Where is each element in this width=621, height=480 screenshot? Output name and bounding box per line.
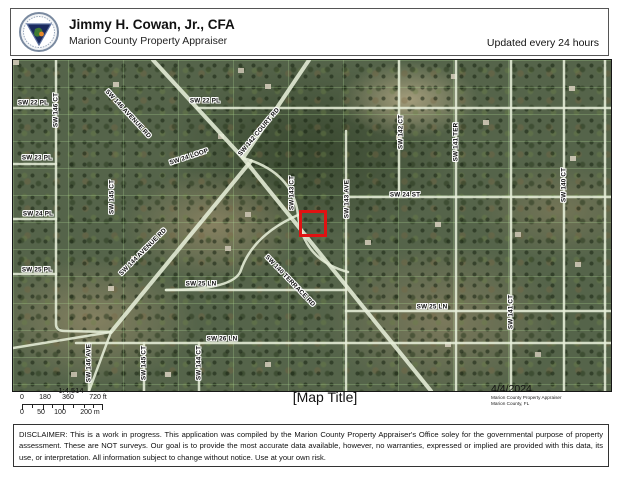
scale-bar (22, 404, 103, 405)
scale-ft-360: 360 (62, 394, 74, 401)
header: Jimmy H. Cowan, Jr., CFA Marion County P… (10, 8, 609, 56)
parcel-highlight[interactable] (299, 210, 327, 237)
scale-ft-180: 180 (39, 394, 51, 401)
street-label: SW 145 CT (141, 346, 148, 380)
street-label: SW 141 TER (453, 123, 460, 162)
street-label: SW 141 CT (508, 295, 515, 329)
street-label: SW 144 CT (196, 346, 203, 380)
street-label: SW 24 ST (390, 192, 420, 199)
street-label: SW 25 LN (417, 304, 448, 311)
aerial-map[interactable]: SW 22 PLSW 146 CTSW 146 AVENUE RDSW 22 P… (12, 59, 612, 392)
scale-m-0: 0 (20, 409, 24, 416)
street-label: SW 146 CT (53, 93, 60, 127)
map-title: [Map Title] (293, 389, 358, 405)
street-label: SW 25 LN (186, 281, 217, 288)
street-label: SW 143 AVE (344, 180, 351, 218)
updated-label: Updated every 24 hours (487, 37, 599, 49)
street-label: SW 25 PL (22, 267, 52, 274)
county-seal-icon (19, 12, 59, 52)
street-label: SW 145 CT (109, 180, 116, 214)
street-label: SW 142 CT (398, 115, 405, 149)
date-block: 4/4/2024 Marion County Property Appraise… (491, 383, 562, 408)
street-label: SW 23 PL (22, 155, 52, 162)
street-label: SW 24 PL (23, 211, 53, 218)
scale-m-200: 200 m (80, 409, 99, 416)
street-label: SW 140 CT (561, 168, 568, 202)
disclaimer-box: DISCLAIMER: This is a work in progress. … (13, 424, 609, 467)
appraiser-name: Jimmy H. Cowan, Jr., CFA (69, 17, 235, 32)
street-label: SW 143 CT (289, 176, 296, 210)
disclaimer-text: DISCLAIMER: This is a work in progress. … (19, 429, 603, 463)
street-label: SW 26 LN (207, 336, 238, 343)
scale-ft-720: 720 ft (89, 394, 107, 401)
page: Jimmy H. Cowan, Jr., CFA Marion County P… (0, 0, 621, 480)
map-date: 4/4/2024 (491, 383, 562, 395)
street-label: SW 22 PL (190, 98, 220, 105)
office-name: Marion County Property Appraiser (69, 35, 227, 47)
county-seal-logo (19, 12, 59, 52)
scale-m-100: 100 (54, 409, 66, 416)
street-label: SW 146 AVE (86, 344, 93, 382)
scale-m-50: 50 (37, 409, 45, 416)
attribution-line-2: Marion County, FL (491, 401, 562, 407)
scale-ft-0: 0 (20, 394, 24, 401)
street-label: SW 22 PL (18, 100, 48, 107)
